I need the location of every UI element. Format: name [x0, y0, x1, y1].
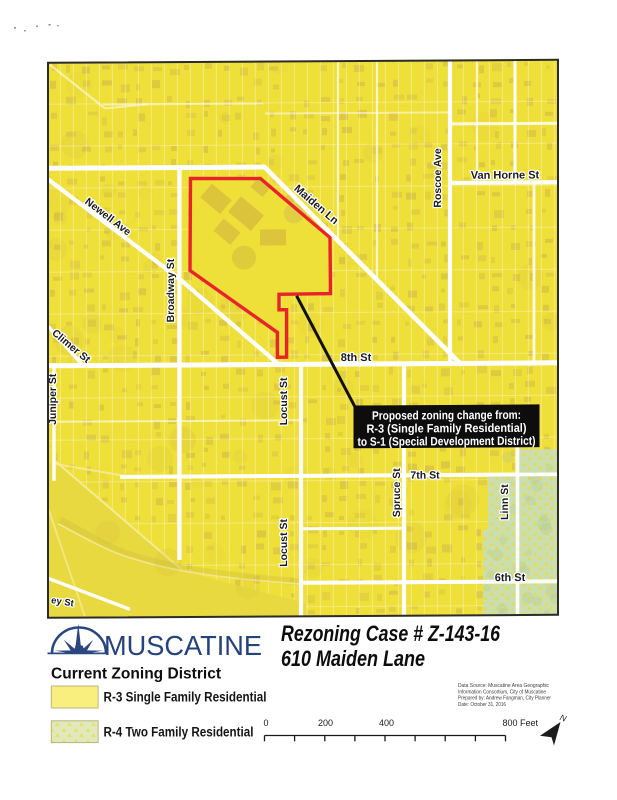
- svg-text:Spruce St: Spruce St: [391, 468, 403, 518]
- svg-text:610 Maiden Lane: 610 Maiden Lane: [281, 646, 425, 671]
- svg-text:400: 400: [379, 718, 394, 728]
- svg-text:Current Zoning District: Current Zoning District: [51, 665, 222, 682]
- svg-text:8th St: 8th St: [341, 352, 372, 364]
- svg-text:R-4 Two Family Residential: R-4 Two Family Residential: [104, 725, 254, 740]
- svg-text:Date: October 31, 2016: Date: October 31, 2016: [458, 702, 506, 708]
- svg-text:to S-1 (Special Development Di: to S-1 (Special Development District): [358, 434, 536, 449]
- svg-text:200: 200: [318, 718, 333, 728]
- svg-text:6th St: 6th St: [495, 572, 526, 584]
- svg-text:Linn St: Linn St: [499, 484, 511, 520]
- svg-text:Rezoning Case # Z-143-16: Rezoning Case # Z-143-16: [281, 621, 501, 646]
- svg-text:Locust St: Locust St: [278, 518, 290, 566]
- svg-text:R-3 Single Family Residential: R-3 Single Family Residential: [104, 690, 267, 705]
- svg-text:Locust St: Locust St: [278, 377, 290, 425]
- svg-text:Data Source: Muscatine Area Ge: Data Source: Muscatine Area Geographic: [458, 683, 549, 689]
- svg-text:Prepared by: Andrew Fangman, C: Prepared by: Andrew Fangman, City Planne…: [458, 696, 551, 702]
- svg-text:Roscoe Ave: Roscoe Ave: [432, 148, 444, 208]
- svg-text:800 Feet: 800 Feet: [503, 718, 539, 728]
- svg-text:Van Horne St: Van Horne St: [471, 169, 540, 181]
- svg-text:0: 0: [263, 718, 268, 728]
- svg-text:7th St: 7th St: [410, 469, 440, 481]
- svg-text:Information Consortium, City o: Information Consortium, City of Muscatin…: [458, 689, 546, 695]
- svg-text:MUSCATINE: MUSCATINE: [104, 630, 262, 661]
- svg-text:Broadway St: Broadway St: [165, 258, 177, 322]
